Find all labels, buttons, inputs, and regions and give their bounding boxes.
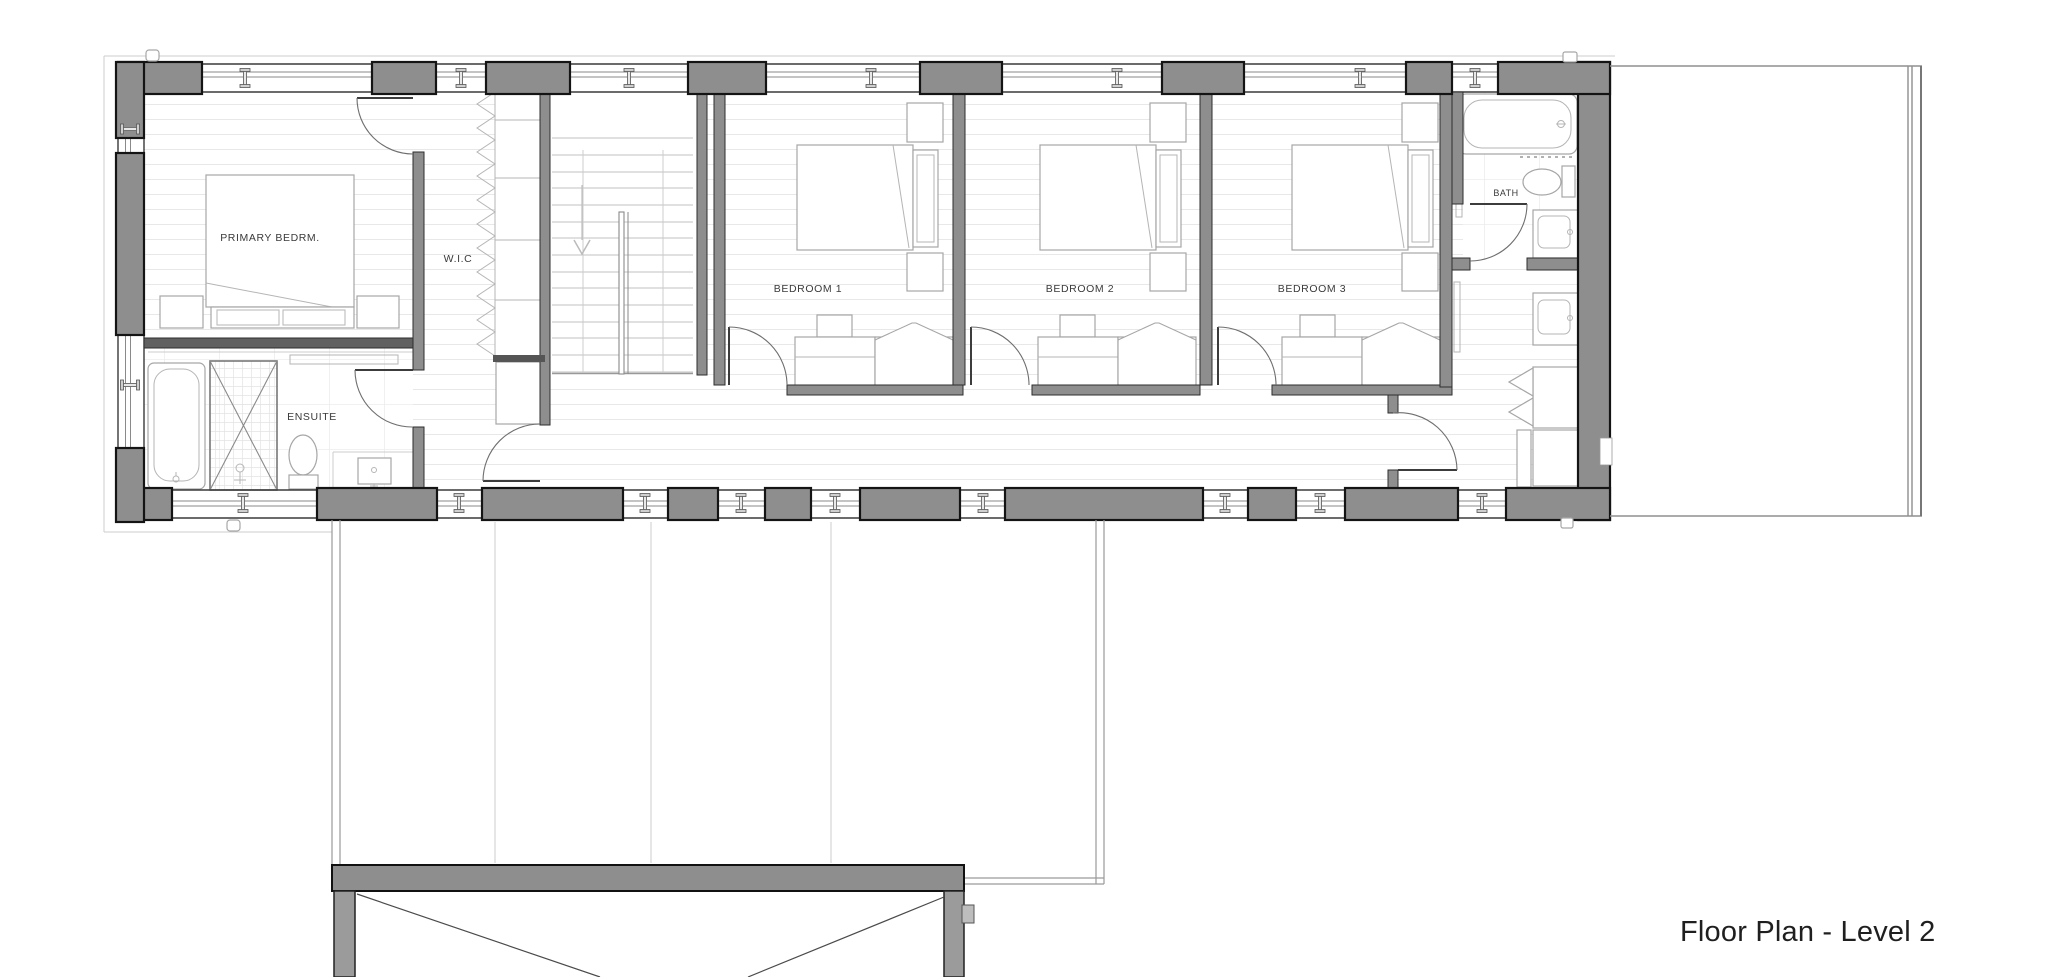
bench: [1362, 337, 1440, 386]
wall-stair-side: [697, 92, 707, 375]
wall-bedroom2-hall: [1032, 385, 1200, 395]
bench: [875, 337, 953, 386]
nightstand: [1402, 253, 1438, 291]
room-label-wic: W.I.C: [444, 253, 473, 265]
room-label-ensuite: ENSUITE: [287, 411, 337, 423]
wall-bedroom2-bedroom3: [1200, 92, 1212, 385]
toilet: [289, 435, 317, 475]
nightstand: [1150, 253, 1186, 291]
wall-bedroom3-bath: [1440, 92, 1452, 387]
wall-primary-wic: [413, 152, 424, 370]
carport-wall: [944, 891, 964, 977]
toilet: [1523, 169, 1561, 195]
dresser: [795, 337, 875, 386]
nightstand: [907, 253, 943, 291]
nightstand: [160, 296, 203, 328]
downspout-icon: [1561, 518, 1573, 528]
room-label-bath: BATH: [1493, 188, 1518, 198]
stair-railing: [619, 212, 624, 374]
linen-closet: [1533, 367, 1578, 428]
wall-bath-bottom: [1527, 258, 1578, 270]
carport-wall: [334, 891, 355, 977]
drawing-title: Floor Plan - Level 2: [1680, 916, 1935, 948]
wall-bedroom1-bedroom2: [953, 92, 965, 385]
room-label-bedroom-3: BEDROOM 3: [1278, 283, 1346, 295]
wic-cabinet: [496, 362, 543, 424]
downspout-icon: [227, 520, 240, 531]
bathtub: [148, 363, 205, 489]
wall-bedroom1-left: [714, 92, 725, 385]
dresser: [1282, 337, 1362, 386]
deck: [1610, 66, 1922, 516]
dresser: [1038, 337, 1118, 386]
bench: [1517, 430, 1531, 487]
deck-door-opening: [1600, 438, 1612, 465]
nightstand: [1150, 103, 1186, 142]
wall-wic-stair: [540, 92, 550, 425]
nightstand: [1402, 103, 1438, 142]
floor-plan-drawing: PRIMARY BEDRM. W.I.C ENSUITE BEDROOM 1 B…: [0, 0, 2048, 977]
downspout-icon: [146, 50, 159, 61]
room-label-bedroom-2: BEDROOM 2: [1046, 283, 1114, 295]
closet-back: [493, 355, 545, 362]
sink: [358, 458, 391, 484]
lower-deck-edge: [332, 865, 964, 891]
lower-level-outline: [332, 520, 1104, 977]
vanity: [1533, 293, 1578, 345]
floor-plan-sheet: PRIMARY BEDRM. W.I.C ENSUITE BEDROOM 1 B…: [0, 0, 2048, 977]
room-label-bedroom-1: BEDROOM 1: [774, 283, 842, 295]
wall-bedroom3-hall: [1272, 385, 1452, 395]
wall-bath-left: [1452, 92, 1463, 204]
wall-primary-ensuite: [144, 338, 417, 348]
nightstand: [907, 103, 943, 142]
downspout-icon: [1563, 52, 1577, 62]
bench: [1118, 337, 1196, 386]
nightstand: [357, 296, 399, 328]
wall-bedroom1-hall: [787, 385, 963, 395]
room-label-primary-bedroom: PRIMARY BEDRM.: [220, 232, 320, 244]
